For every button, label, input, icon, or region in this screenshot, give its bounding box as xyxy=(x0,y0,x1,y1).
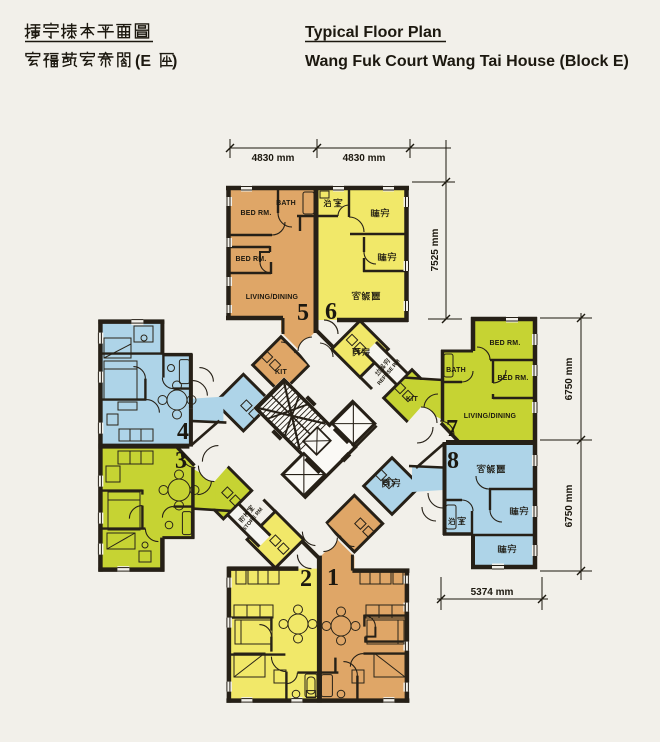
svg-text:3: 3 xyxy=(175,448,187,474)
svg-text:8: 8 xyxy=(447,448,459,474)
svg-text:KIT: KIT xyxy=(275,369,287,376)
svg-text:4: 4 xyxy=(177,419,189,445)
svg-text:BED RM.: BED RM. xyxy=(498,375,529,382)
svg-text:4830 mm: 4830 mm xyxy=(252,153,295,164)
svg-text:4830 mm: 4830 mm xyxy=(343,153,386,164)
svg-text:7: 7 xyxy=(446,416,458,442)
svg-text:7525 mm: 7525 mm xyxy=(430,228,441,271)
svg-text:KIT: KIT xyxy=(406,396,418,403)
svg-text:BED RM.: BED RM. xyxy=(241,210,272,217)
svg-text:BATH: BATH xyxy=(446,367,466,374)
svg-text:1: 1 xyxy=(327,565,339,591)
svg-text:LIVING/DINING: LIVING/DINING xyxy=(246,294,299,301)
svg-text:BATH: BATH xyxy=(276,200,296,207)
svg-text:LIVING/DINING: LIVING/DINING xyxy=(464,413,517,420)
svg-text:5: 5 xyxy=(297,300,309,326)
svg-text:6: 6 xyxy=(325,299,337,325)
svg-text:(E: (E xyxy=(135,53,151,70)
svg-text:2: 2 xyxy=(300,566,312,592)
svg-text:BED RM.: BED RM. xyxy=(490,340,521,347)
svg-text:5374 mm: 5374 mm xyxy=(471,587,514,598)
svg-text:): ) xyxy=(172,53,177,70)
svg-text:Typical Floor Plan: Typical Floor Plan xyxy=(305,24,442,41)
svg-text:6750 mm: 6750 mm xyxy=(564,484,575,527)
svg-text:BED RM.: BED RM. xyxy=(236,256,267,263)
svg-text:6750 mm: 6750 mm xyxy=(564,357,575,400)
svg-text:Wang Fuk Court Wang Tai House: Wang Fuk Court Wang Tai House (Block E) xyxy=(305,53,629,70)
